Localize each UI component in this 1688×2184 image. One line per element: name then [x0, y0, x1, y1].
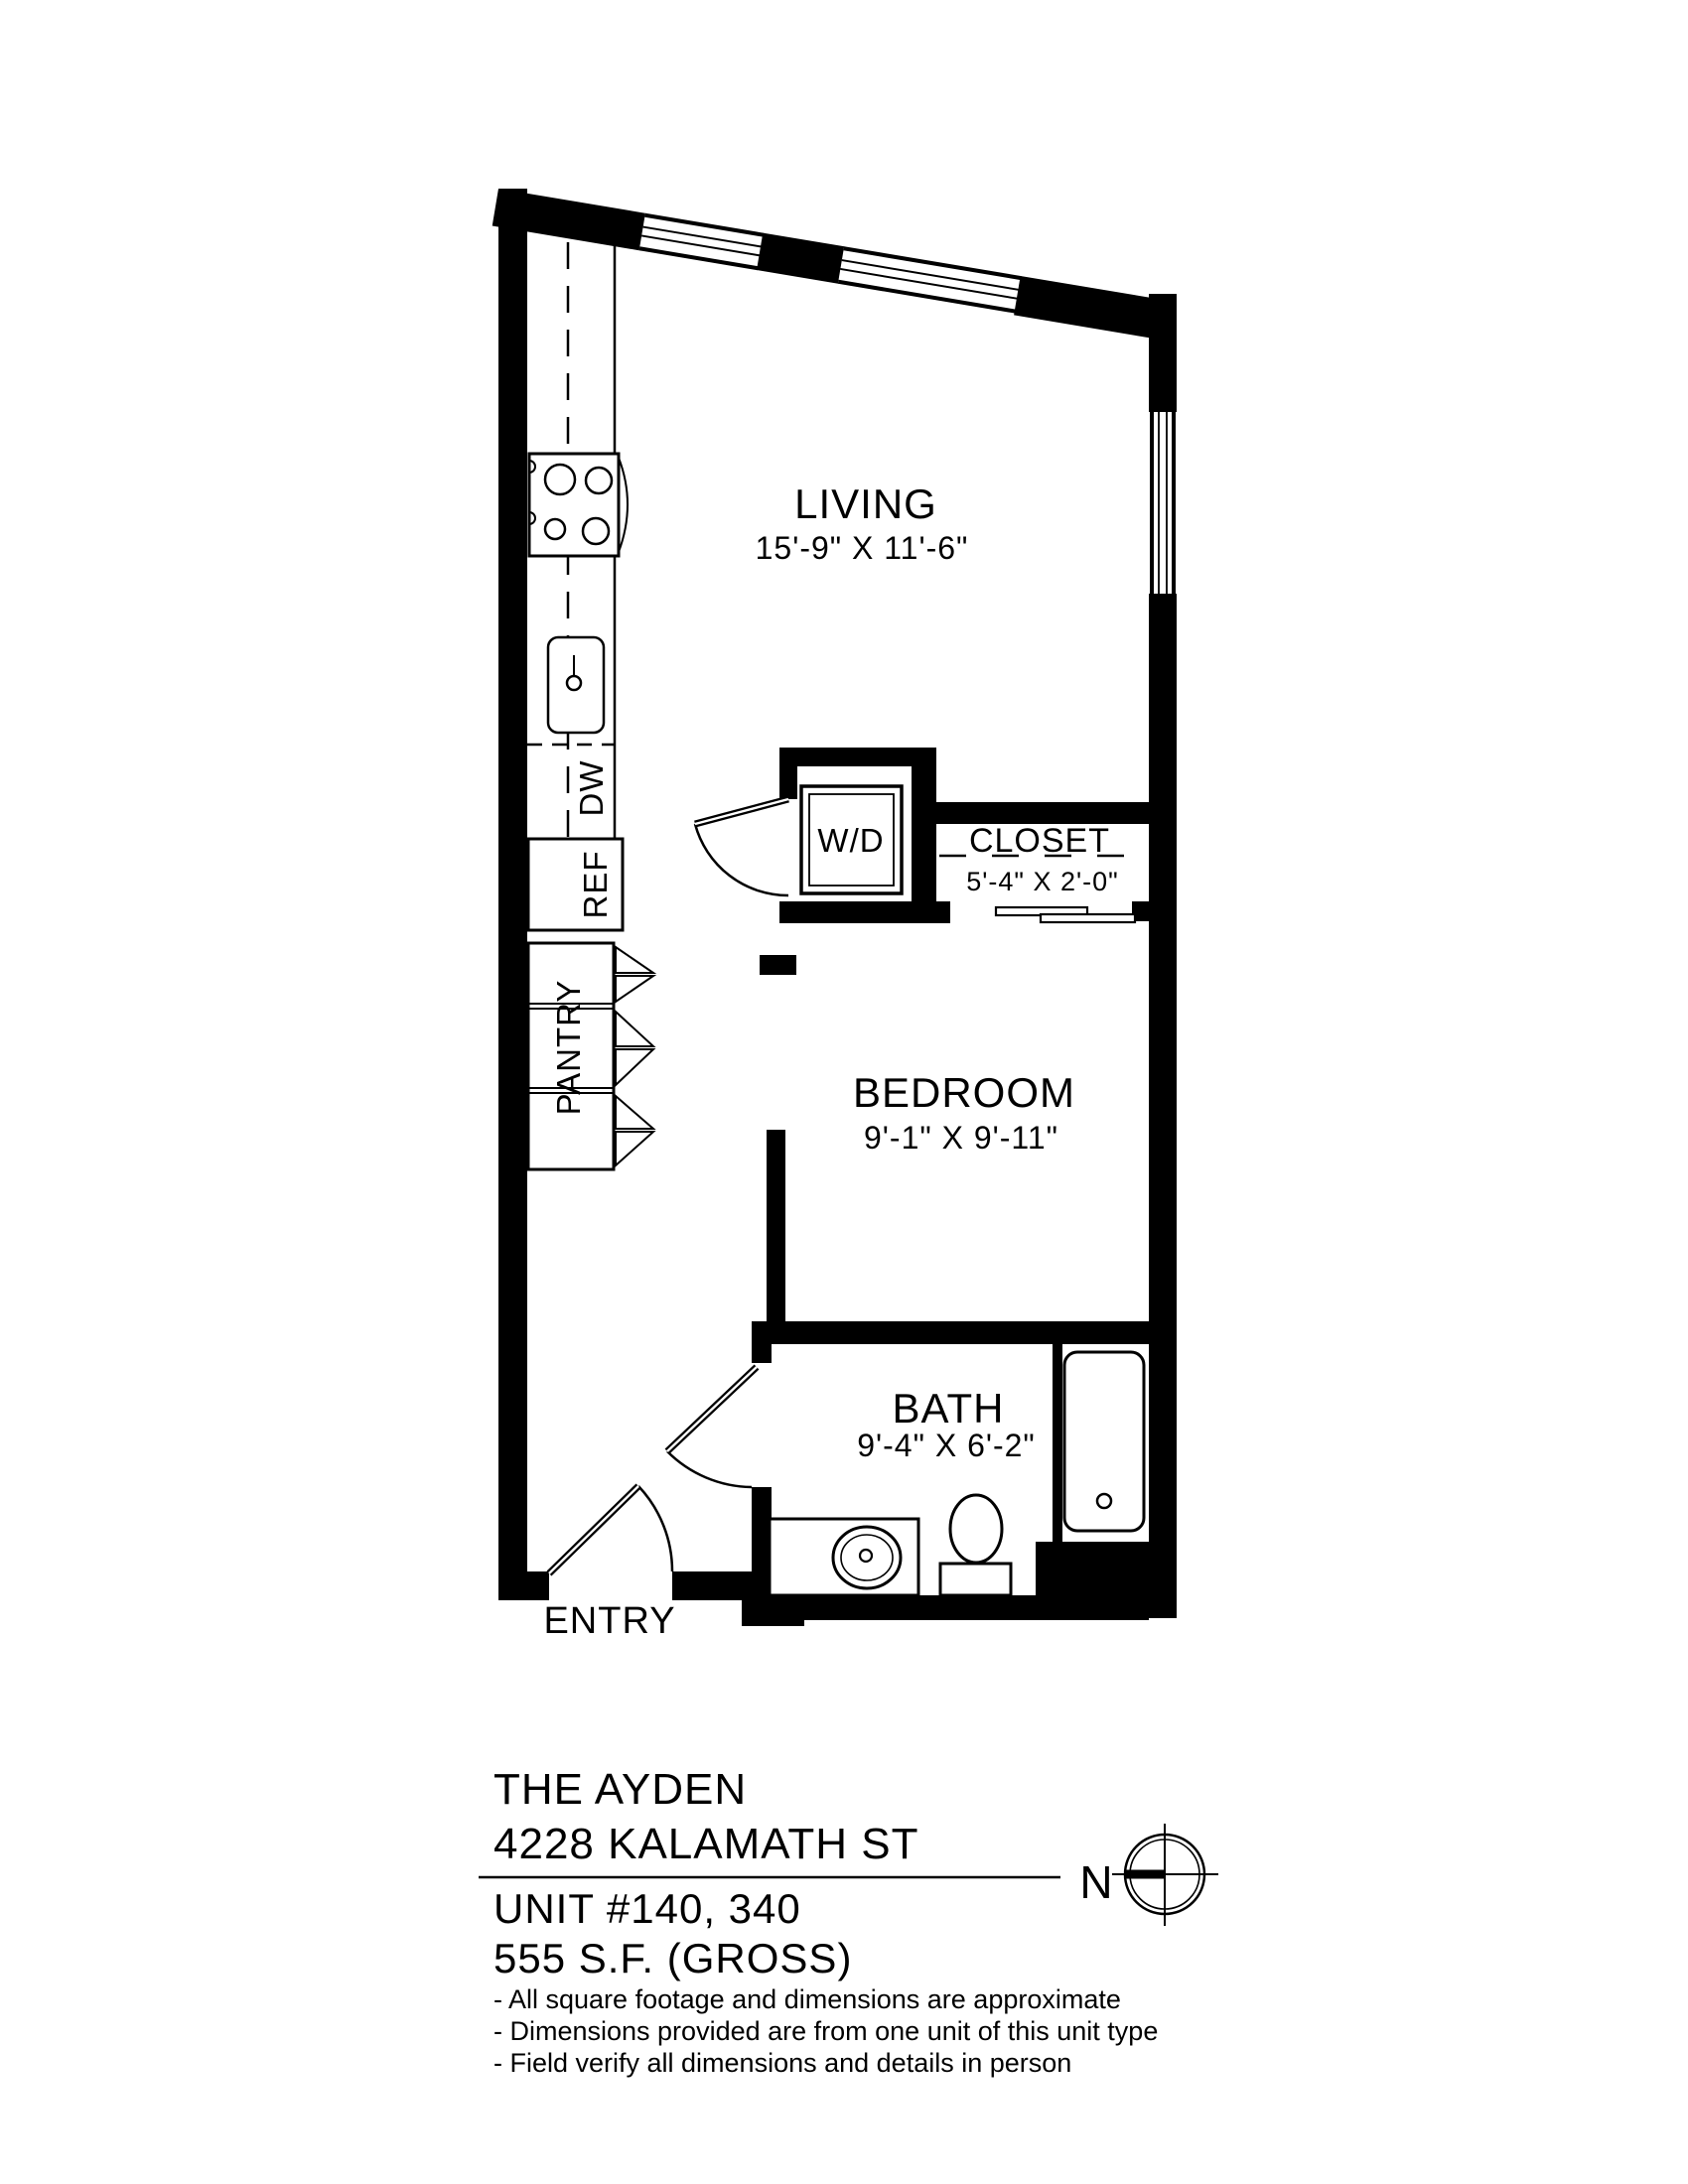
wall-bathdoor-stub-top [752, 1344, 772, 1363]
pantry-door-icons [616, 947, 653, 1165]
floor-plan-drawing: LIVING 15'-9" X 11'-6" BEDROOM 9'-1" X 9… [0, 0, 1688, 2184]
wall-stub-below-wd [760, 955, 796, 975]
wall-bedroom-left [767, 1130, 785, 1323]
north-label: N [1079, 1856, 1112, 1908]
note-1: - All square footage and dimensions are … [493, 1984, 1121, 2014]
entry-label: ENTRY [543, 1600, 675, 1642]
note-3: - Field verify all dimensions and detail… [493, 2048, 1071, 2078]
closet-slider-right [1041, 914, 1135, 922]
unit-area: 555 S.F. (GROSS) [493, 1935, 852, 1981]
wall-wd-bottom [779, 901, 950, 923]
bath-dims: 9'-4" X 6'-2" [857, 1428, 1036, 1463]
wd-door [695, 799, 788, 895]
wall-closet-top [936, 802, 1149, 824]
pantry-label: PANTRY [550, 980, 587, 1116]
wd-label: W/D [817, 822, 884, 859]
wall-wd-right [912, 748, 936, 923]
north-compass-icon: N [1079, 1824, 1218, 1926]
wall-top-sloped [492, 189, 1159, 339]
bedroom-dims: 9'-1" X 9'-11" [864, 1120, 1058, 1156]
kitchen-sink [548, 637, 604, 733]
wall-tub-divider [1053, 1344, 1062, 1543]
vanity-sink [770, 1519, 918, 1595]
dishwasher-label: DW [573, 760, 610, 817]
living-label: LIVING [794, 480, 937, 527]
refrigerator-label: REF [577, 851, 614, 919]
bath-label: BATH [893, 1385, 1005, 1432]
wall-bedroom-bottom [752, 1321, 1149, 1344]
toilet [940, 1495, 1011, 1595]
floor-plan-page: LIVING 15'-9" X 11'-6" BEDROOM 9'-1" X 9… [0, 0, 1688, 2184]
stove [529, 454, 628, 556]
bathtub [1064, 1352, 1144, 1531]
pantry-cabinet [528, 943, 653, 1169]
wall-under-tub [1036, 1542, 1149, 1597]
building-name: THE AYDEN [493, 1765, 747, 1814]
note-2: - Dimensions provided are from one unit … [493, 2016, 1158, 2046]
bedroom-label: BEDROOM [853, 1069, 1075, 1116]
closet-label: CLOSET [969, 822, 1110, 860]
living-dims: 15'-9" X 11'-6" [756, 530, 969, 566]
wall-wd-left [779, 748, 797, 799]
window-top-2 [838, 246, 1022, 313]
window-right [1149, 412, 1177, 594]
window-top-1 [639, 213, 765, 270]
address: 4228 KALAMATH ST [493, 1820, 918, 1868]
wall-bath-bottom [781, 1595, 1149, 1620]
unit-number: UNIT #140, 340 [493, 1885, 801, 1932]
entry-door [549, 1486, 672, 1573]
closet-dims: 5'-4" X 2'-0" [966, 867, 1119, 896]
bath-door [667, 1367, 757, 1487]
wall-bottom-left-stub [498, 1571, 549, 1600]
kitchen [527, 242, 653, 1169]
wall-left [498, 189, 527, 1600]
title-block: THE AYDEN 4228 KALAMATH ST UNIT #140, 34… [479, 1765, 1158, 2078]
